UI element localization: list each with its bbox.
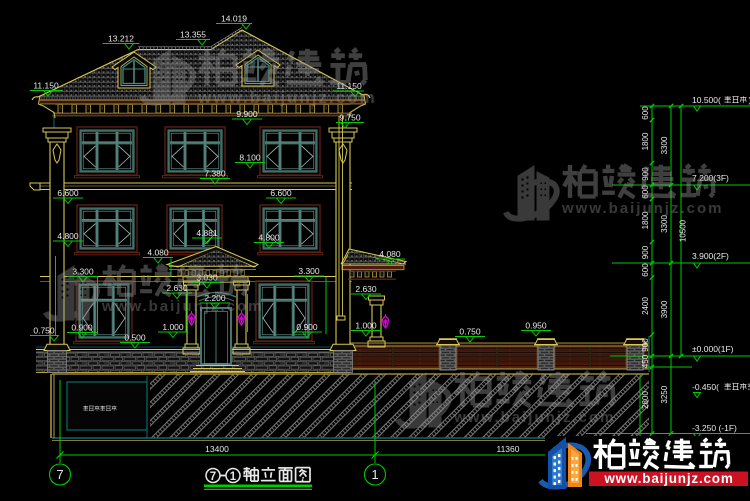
svg-text:7: 7 [56, 467, 63, 482]
svg-text:1: 1 [371, 467, 378, 482]
svg-text:www.baijunjz.com: www.baijunjz.com [561, 200, 723, 217]
svg-text:4.080: 4.080 [147, 248, 169, 258]
svg-text:6.600: 6.600 [270, 188, 292, 198]
svg-text:4.800: 4.800 [258, 233, 280, 243]
svg-text:450: 450 [641, 354, 650, 368]
svg-text:900: 900 [641, 245, 650, 259]
svg-text:3.300: 3.300 [298, 266, 320, 276]
svg-text:10500: 10500 [679, 219, 688, 242]
svg-text:3300: 3300 [660, 215, 669, 233]
svg-text:0.900: 0.900 [296, 322, 318, 332]
svg-text:9.900: 9.900 [236, 109, 258, 119]
svg-text:14.019: 14.019 [221, 14, 247, 24]
svg-text:10.500(: 10.500( [692, 95, 721, 105]
svg-text:13.355: 13.355 [180, 30, 206, 40]
svg-text:9.750: 9.750 [339, 113, 361, 123]
svg-text:900: 900 [641, 338, 650, 352]
svg-text:1800: 1800 [641, 132, 650, 150]
svg-text:-3.250 (-1F): -3.250 (-1F) [692, 423, 737, 433]
svg-text:www.baijunjz.com: www.baijunjz.com [453, 409, 615, 426]
svg-text:1.000: 1.000 [162, 322, 184, 332]
svg-text:11.150: 11.150 [33, 81, 59, 91]
svg-text:4.881: 4.881 [196, 228, 218, 238]
svg-text:8.100: 8.100 [239, 153, 261, 163]
svg-text:±0.000(1F): ±0.000(1F) [692, 344, 734, 354]
svg-text:11360: 11360 [496, 444, 519, 454]
svg-text:3300: 3300 [660, 136, 669, 154]
svg-text:0.750: 0.750 [33, 326, 55, 336]
svg-text:1.000: 1.000 [355, 321, 377, 331]
svg-text:7: 7 [210, 471, 216, 483]
svg-text:0.900: 0.900 [71, 323, 93, 333]
svg-text:4.800: 4.800 [57, 231, 79, 241]
svg-text:6.600: 6.600 [57, 188, 79, 198]
svg-text:600: 600 [641, 106, 650, 120]
svg-text:3.900(2F): 3.900(2F) [692, 251, 729, 261]
svg-text:4.080: 4.080 [379, 249, 401, 259]
svg-text:-0.450(: -0.450( [692, 382, 719, 392]
svg-text:7.380: 7.380 [204, 169, 226, 179]
svg-text:13400: 13400 [205, 444, 229, 454]
svg-text:0.500: 0.500 [124, 333, 146, 343]
svg-text:0.950: 0.950 [525, 321, 547, 331]
svg-text:2.630: 2.630 [166, 283, 188, 293]
svg-text:2800: 2800 [641, 391, 650, 409]
svg-text:0.750: 0.750 [459, 327, 481, 337]
svg-text:13.212: 13.212 [108, 34, 134, 44]
svg-text:1: 1 [230, 471, 237, 483]
svg-text:2.630: 2.630 [355, 284, 377, 294]
svg-text:www.baijunjz.com: www.baijunjz.com [603, 471, 733, 486]
svg-text:www.baijunjz.com: www.baijunjz.com [197, 88, 377, 107]
svg-text:2400: 2400 [641, 297, 650, 315]
svg-text:3250: 3250 [660, 385, 669, 403]
svg-text:600: 600 [641, 263, 650, 277]
svg-text:www.baijunjz.com: www.baijunjz.com [101, 298, 263, 315]
svg-text:3900: 3900 [660, 300, 669, 318]
